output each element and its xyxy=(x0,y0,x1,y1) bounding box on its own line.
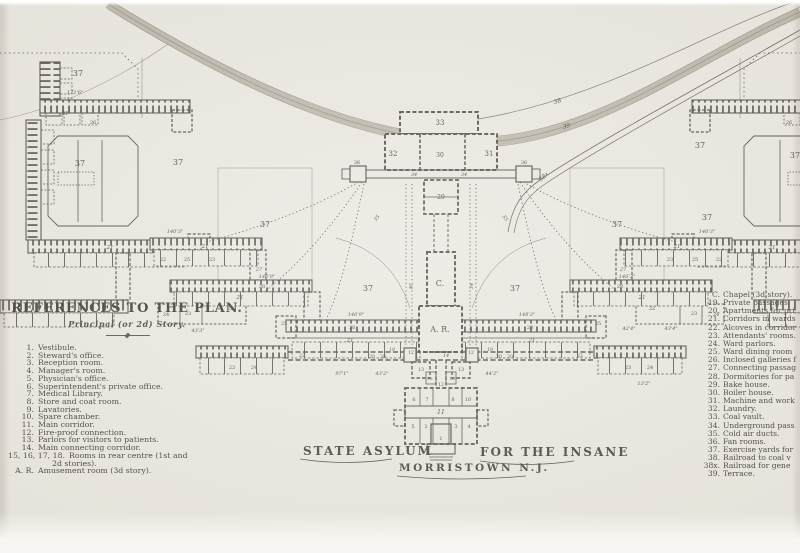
plan-label: 37 xyxy=(702,213,712,222)
plan-title-left: STATE ASYLUM xyxy=(303,444,433,458)
plan-label: 13'2" xyxy=(637,381,650,387)
plan-label: 140'3" xyxy=(167,229,183,235)
plan-label: 28 xyxy=(527,325,533,331)
plan-label: 12 xyxy=(408,350,414,356)
plan-label: 20 xyxy=(507,354,513,360)
plan-label: 22 xyxy=(649,306,655,312)
plan-label: 30 xyxy=(436,152,444,159)
plan-label: A. R. xyxy=(429,325,449,334)
plan-label: 148'3" xyxy=(519,312,535,318)
plan-label: 37 xyxy=(612,220,622,229)
plan-label: 15 xyxy=(427,376,433,381)
plan-label: 29 xyxy=(437,194,445,201)
plan-label: 146'9" xyxy=(259,274,275,280)
plan-label: 5 xyxy=(411,424,414,430)
plan-label: 24 xyxy=(647,365,653,371)
plan-label: 28 xyxy=(349,325,355,331)
scanned-plan-page: 37373737373737373737333230313434363629C.… xyxy=(0,0,800,553)
plan-label: 21 xyxy=(201,244,209,250)
references-legend-continued: C.Chapel (3d story).19.Private passages.… xyxy=(698,291,800,479)
plan-label: 23 xyxy=(209,257,215,263)
plan-label: 35 xyxy=(373,214,382,223)
plan-label: 23 xyxy=(691,311,697,317)
plan-label: 22 xyxy=(716,257,722,263)
legend-subtitle: Principal (or 2d) Story. xyxy=(8,319,246,329)
plan-label: 22 xyxy=(160,257,166,263)
plan-label: 23 xyxy=(667,257,673,263)
plan-label: 11 xyxy=(437,409,445,416)
plan-label: 36 xyxy=(521,160,527,166)
plan-label: 37 xyxy=(73,69,83,78)
plan-title-city: MORRISTOWN N.J. xyxy=(399,462,550,474)
plan-label: 3 xyxy=(454,424,457,430)
plan-label: 2 xyxy=(424,424,427,430)
plan-label: 37 xyxy=(695,141,705,150)
plan-label: 31 xyxy=(485,150,494,158)
plan-label: 22 xyxy=(577,353,583,359)
plan-label: 97'1" xyxy=(335,371,348,377)
plan-label: 19 xyxy=(487,347,493,353)
plan-label: 12 xyxy=(468,350,474,356)
legend-item: 39.Terrace. xyxy=(698,470,800,478)
plan-label: 28 xyxy=(617,284,623,290)
plan-label: 21 xyxy=(638,295,646,301)
plan-label: 25 xyxy=(281,321,287,327)
flourish-bottom xyxy=(397,476,526,479)
plan-label: 13 xyxy=(458,367,464,373)
plan-label: 21 xyxy=(346,338,354,344)
plan-label: 25 xyxy=(184,257,190,263)
plan-label: 32 xyxy=(389,150,398,158)
plan-label: 34 xyxy=(461,172,467,178)
plan-label: 20 xyxy=(369,354,375,360)
plan-label: 4 xyxy=(467,424,470,430)
plan-label: 28 xyxy=(259,284,265,290)
plan-label: 140'3" xyxy=(699,229,715,235)
plan-label: 26 xyxy=(786,120,792,126)
plan-label: 27 xyxy=(619,267,627,273)
legend-title: REFERENCES TO THE PLAN. xyxy=(8,301,246,316)
plan-label: 21 xyxy=(528,338,536,344)
fan-house-west xyxy=(350,166,366,182)
plan-label: 37 xyxy=(173,158,183,167)
plan-label: 146'9" xyxy=(348,312,364,318)
plan-label: 19 xyxy=(389,347,395,353)
plan-label: 37 xyxy=(363,284,373,293)
plan-label: 44'2" xyxy=(484,371,498,377)
plan-label: 43'4" xyxy=(663,326,677,332)
plan-label: 16 xyxy=(449,376,455,381)
plan-label: 37 xyxy=(260,220,270,229)
plan-label: 35 xyxy=(501,214,510,223)
plan-label: 21 xyxy=(61,111,69,117)
plan-label: 20 xyxy=(380,354,386,360)
plan-label: 12 xyxy=(438,382,444,388)
legend-item: 15, 16, 17, 18.Rooms in rear centre (1st… xyxy=(8,452,270,460)
plan-label: 6 xyxy=(412,397,415,403)
plan-label: C. xyxy=(436,279,444,288)
plan-label: 21 xyxy=(106,245,114,251)
plan-label: 25 xyxy=(692,257,698,263)
plan-label: 34 xyxy=(407,283,413,289)
plan-label: 20 xyxy=(496,354,502,360)
plan-label: 21 xyxy=(673,244,681,250)
plan-label: 43'2" xyxy=(374,371,388,377)
plan-label: 25 xyxy=(595,321,601,327)
plan-label: 7 xyxy=(425,397,428,403)
plan-label: 1 xyxy=(439,436,442,442)
plan-label: 37 xyxy=(790,151,800,160)
legend-right-list: C.Chapel (3d story).19.Private passages.… xyxy=(698,291,800,479)
plan-label: 13 xyxy=(418,367,424,373)
plan-label: 34 xyxy=(411,172,417,178)
plan-label: 37 xyxy=(75,159,85,168)
plan-label: 36 xyxy=(354,160,360,166)
legend-item: A. R.Amusement room (3d story). xyxy=(8,467,270,475)
plan-label: 34 xyxy=(469,283,475,289)
references-legend: REFERENCES TO THE PLAN. Principal (or 2d… xyxy=(8,301,270,475)
plan-label: 27 xyxy=(255,267,263,273)
plan-label: 172'6" xyxy=(67,90,83,96)
plan-label: 10 xyxy=(465,397,471,403)
fan-house-east xyxy=(516,166,532,182)
plan-label: 37 xyxy=(510,284,520,293)
plan-label: 42'4" xyxy=(621,326,635,332)
plan-label: 21 xyxy=(768,245,776,251)
plan-title-right: FOR THE INSANE xyxy=(480,445,629,459)
flourish-left xyxy=(300,459,392,463)
plan-label: 146'3" xyxy=(619,274,635,280)
plan-label: 33 xyxy=(436,119,445,127)
plan-label: 26 xyxy=(90,120,96,126)
plan-label: 14 xyxy=(443,353,449,359)
plan-label: 22 xyxy=(299,353,305,359)
central-buildings xyxy=(288,112,594,479)
plan-label: 8 xyxy=(451,397,454,403)
ornament-divider xyxy=(106,333,150,338)
legend-left-list: 1.Vestibule.2.Steward's office.3.Recepti… xyxy=(8,344,270,475)
plan-label: 23 xyxy=(625,365,631,371)
